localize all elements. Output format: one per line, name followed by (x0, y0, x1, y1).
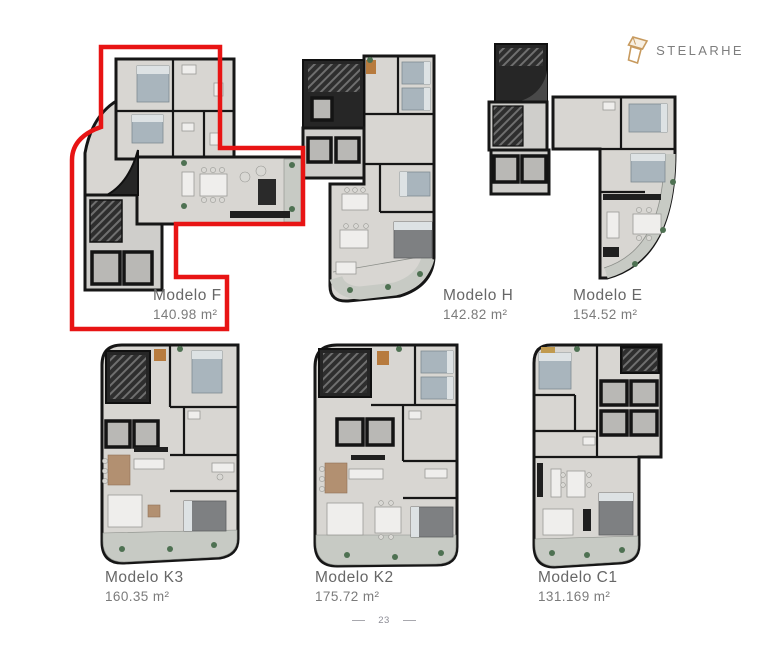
footer-rule-left (352, 620, 365, 621)
model-area: 160.35 m² (105, 589, 184, 605)
label-modelo-e: Modelo E 154.52 m² (573, 287, 642, 323)
modelo-f-highlight-outline (56, 36, 312, 336)
page-number: 23 (378, 615, 390, 626)
footer-rule-right (403, 620, 416, 621)
model-name: Modelo E (573, 287, 642, 306)
model-name: Modelo K3 (105, 569, 184, 588)
floorplan-modelo-e (483, 42, 683, 284)
floorplan-brochure-page: STELARHE (0, 0, 768, 658)
label-modelo-c1: Modelo C1 131.169 m² (538, 569, 617, 605)
page-footer: 23 (0, 615, 768, 626)
model-name: Modelo K2 (315, 569, 394, 588)
label-modelo-k2: Modelo K2 175.72 m² (315, 569, 394, 605)
floorplan-modelo-k3 (92, 343, 247, 568)
model-area: 142.82 m² (443, 307, 513, 323)
floorplan-modelo-c1 (527, 343, 669, 573)
model-area: 154.52 m² (573, 307, 642, 323)
model-area: 175.72 m² (315, 589, 394, 605)
floorplan-modelo-k2 (307, 343, 463, 571)
label-modelo-h: Modelo H 142.82 m² (443, 287, 513, 323)
model-area: 131.169 m² (538, 589, 617, 605)
model-name: Modelo H (443, 287, 513, 306)
floorplan-modelo-h (300, 52, 438, 304)
label-modelo-k3: Modelo K3 160.35 m² (105, 569, 184, 605)
model-name: Modelo C1 (538, 569, 617, 588)
